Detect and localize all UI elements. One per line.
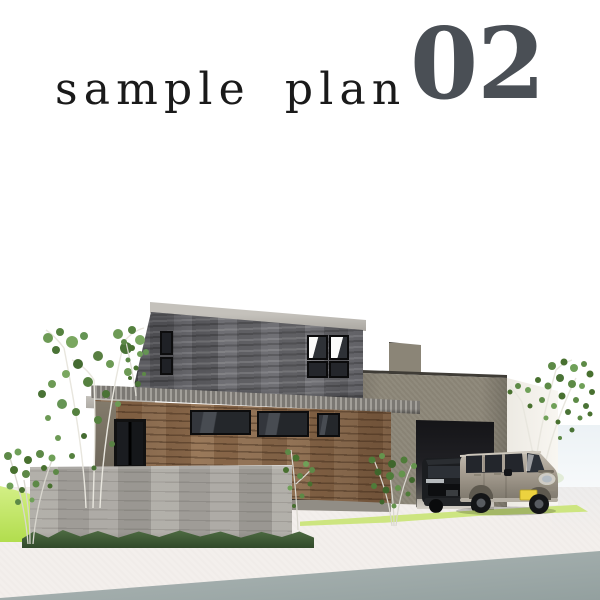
door-mirror [504,469,512,476]
garage-upper-block [389,340,421,374]
kei-car [452,443,566,517]
upper-narrow-window [160,357,173,375]
lower-window [257,411,309,437]
upper-grid-window [307,335,328,360]
sapling-fence [276,444,318,532]
upper-grid-window [307,361,328,378]
page-title: sample plan [55,68,406,112]
sapling-garage [362,450,422,528]
lower-window [317,413,340,437]
sample-plan-poster: sample plan 02 [0,0,600,600]
greenery-wall-edge [116,334,156,398]
plan-number: 02 [410,16,544,114]
side-windows [466,454,524,474]
upper-grid-window [329,335,349,360]
upper-grid-window [329,361,349,378]
upper-narrow-window [160,331,173,355]
lower-window [190,410,251,435]
headlight [426,479,444,483]
tree-far-left [0,442,66,547]
